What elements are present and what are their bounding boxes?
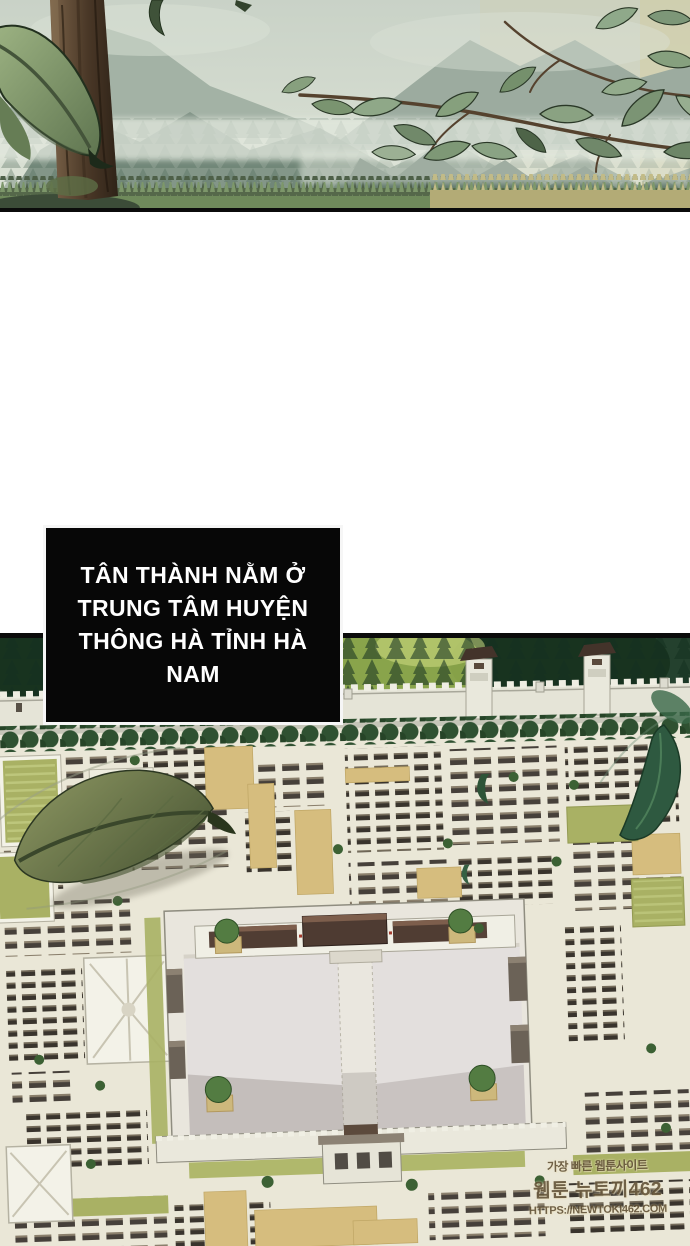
caption-line-4: NAM	[166, 658, 220, 691]
wall-tower	[578, 642, 616, 715]
wall-tower	[460, 646, 498, 719]
webtoon-page: TÂN THÀNH NẰM Ở TRUNG TÂM HUYỆN THÔNG HÀ…	[0, 0, 690, 1246]
panel-border-bottom	[0, 208, 690, 212]
caption-line-2: TRUNG TÂM HUYỆN	[78, 592, 309, 625]
caption-line-1: TÂN THÀNH NẰM Ở	[81, 559, 306, 592]
caption-box: TÂN THÀNH NẰM Ở TRUNG TÂM HUYỆN THÔNG HÀ…	[43, 525, 343, 725]
caption-line-3: THÔNG HÀ TỈNH HÀ	[79, 625, 308, 658]
panel-nature-scene	[0, 0, 690, 212]
palace-complex	[144, 898, 567, 1190]
